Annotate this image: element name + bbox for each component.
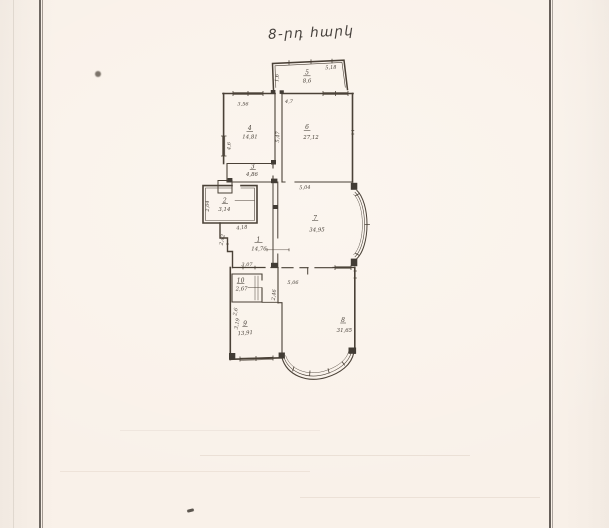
room-3-area: 4,86	[245, 172, 259, 178]
right-border-line-2	[552, 0, 553, 528]
dim-mid-vertical: 5,47	[275, 130, 281, 142]
room-3-number: 3	[251, 164, 255, 171]
dim-room5-left: 1,6	[274, 73, 280, 82]
left-border-line	[39, 0, 41, 528]
scanned-page: 8-րդ հարկ	[0, 0, 609, 528]
dim-room8-top: 5,06	[287, 280, 299, 286]
room-9-number: 9	[243, 320, 247, 327]
room-7-number: 7	[313, 215, 317, 222]
bay-window-right	[353, 190, 370, 259]
dim-room9-left-lower: 3,19	[234, 317, 242, 330]
left-faint-edge-line	[13, 0, 14, 528]
ink-speck	[95, 71, 101, 77]
right-border-line	[549, 0, 551, 528]
dim-room4-left: 4,6	[227, 141, 233, 151]
ink-speck-2	[187, 508, 195, 513]
dim-hall-top: 5,04	[299, 185, 310, 192]
room-8-number: 8	[341, 317, 345, 324]
room-8-area: 31,65	[337, 328, 353, 334]
left-border-line-2	[42, 0, 43, 528]
scan-streak	[200, 455, 470, 456]
scan-streak	[300, 497, 540, 498]
dim-room5-bottom: 4,7	[284, 99, 294, 105]
dim-top-width: 5,18	[325, 65, 337, 72]
handwritten-title: 8-րդ հարկ	[268, 21, 399, 43]
room-6-number: 6	[305, 124, 309, 131]
scan-streak	[120, 430, 320, 431]
dim-room2-bottom: 4,18	[235, 224, 248, 231]
floor-plan: 5,18 5 8,6 1,6 3,56 4 14,81 4,6 4,7 6 27…	[185, 50, 385, 380]
room-6-area: 27,12	[302, 135, 319, 141]
room-5-area: 8,6	[303, 79, 312, 85]
room-5-number: 5	[305, 70, 309, 77]
room-1-number: 1	[256, 236, 260, 243]
bay-window-bottom	[282, 350, 354, 379]
dim-hall-left: 2,42	[218, 234, 226, 247]
dim-room4-top: 3,56	[237, 102, 249, 108]
room-10-number: 10	[237, 278, 245, 285]
dim-room9-left-upper: 2,6	[232, 307, 240, 318]
room-2-area: 3,14	[218, 207, 231, 213]
room-9-area: 13,91	[237, 330, 253, 337]
room-4-number: 4	[247, 125, 252, 132]
room-2-number: 2	[222, 198, 227, 205]
dim-room2-left: 2,04	[205, 200, 211, 212]
room-7-area: 34,95	[309, 227, 325, 233]
room-4-area: 14,81	[242, 135, 257, 141]
room-10-area: 2,67	[235, 286, 249, 292]
scan-streak	[60, 471, 310, 472]
dim-hall-bottom: 3,07	[241, 262, 253, 268]
room-1-area: 14,76	[251, 247, 267, 253]
dim-room10-right: 2,46	[271, 288, 278, 301]
